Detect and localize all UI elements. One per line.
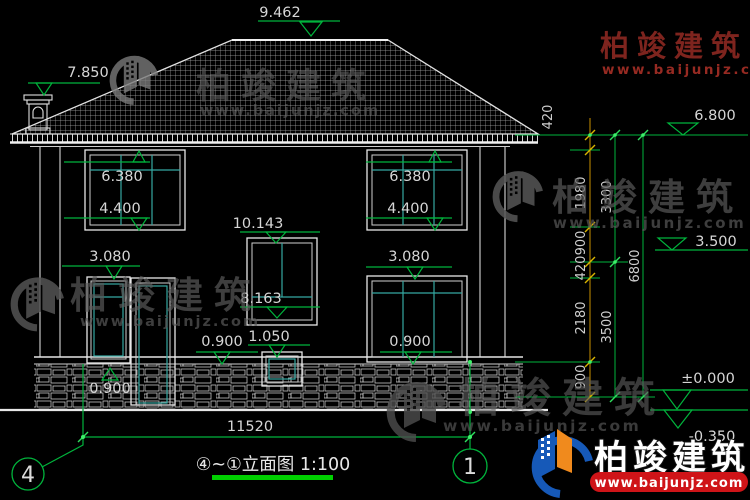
axis-right-number: 1 — [463, 455, 477, 480]
bottom-span-label: 11520 — [227, 419, 273, 435]
watermark-url-bottom: www.baijunjz.com — [443, 417, 641, 435]
watermark-url-left: www.baijunjz.com — [80, 314, 260, 330]
watermark-brand-left: 柏竣建筑 — [70, 274, 262, 317]
w2r-sill-label: 4.400 — [387, 201, 429, 217]
corner-logo-url: www.baijunjz.com — [595, 476, 744, 491]
door-level-label: 0.900 — [201, 334, 243, 350]
dim-900-a: 900 — [574, 231, 589, 256]
dim-2180: 2180 — [574, 301, 589, 334]
w2l-sill-label: 4.400 — [99, 201, 141, 217]
level-zero: ±0.000 — [681, 371, 735, 387]
watermark-top-right-red: 柏竣建筑 www.baijunjz.com — [600, 29, 750, 78]
title-underline — [212, 475, 333, 480]
dim-420-mid: 420 — [574, 256, 589, 281]
axis-left-number: 4 — [21, 463, 35, 488]
drawing-title: ④~①立面图 1:100 — [196, 455, 351, 480]
small-window-label: 1.050 — [248, 329, 290, 345]
elevation-drawing: 9.462 7.850 6.380 4.400 6.380 4.400 10.1… — [0, 0, 750, 500]
watermark-url-right: www.baijunjz.com — [553, 214, 746, 232]
w2r-head-label: 6.380 — [389, 169, 431, 185]
level-label-ridge: 9.462 — [259, 5, 301, 21]
w1r-sill-label: 0.900 — [389, 334, 431, 350]
cad-elevation-screen: 9.462 7.850 6.380 4.400 6.380 4.400 10.1… — [0, 0, 750, 500]
dim-6800: 6800 — [628, 249, 643, 282]
level-floor2: 3.500 — [695, 234, 737, 250]
dim-3500: 3500 — [600, 310, 615, 343]
title-text: ④~①立面图 1:100 — [196, 455, 351, 475]
w1l-head-label: 3.080 — [89, 249, 131, 265]
watermark-brand-right: 柏竣建筑 — [552, 176, 744, 219]
watermark-url-red: www.baijunjz.com — [602, 62, 750, 78]
dim-420-top: 420 — [541, 105, 556, 130]
watermark-url-roof: www.baijunjz.com — [200, 103, 380, 119]
watermark-brand-roof: 柏竣建筑 — [196, 66, 376, 107]
w1l-sill-label: 0.900 — [89, 381, 131, 397]
w2l-head-label: 6.380 — [101, 169, 143, 185]
watermark-brand-red: 柏竣建筑 — [600, 29, 748, 63]
stair-head-label: 10.143 — [233, 216, 284, 232]
watermark-brand-bottom: 柏竣建筑 — [458, 374, 666, 422]
level-eave: 6.800 — [694, 108, 736, 124]
level-label-chimney: 7.850 — [67, 65, 109, 81]
w1r-head-label: 3.080 — [388, 249, 430, 265]
